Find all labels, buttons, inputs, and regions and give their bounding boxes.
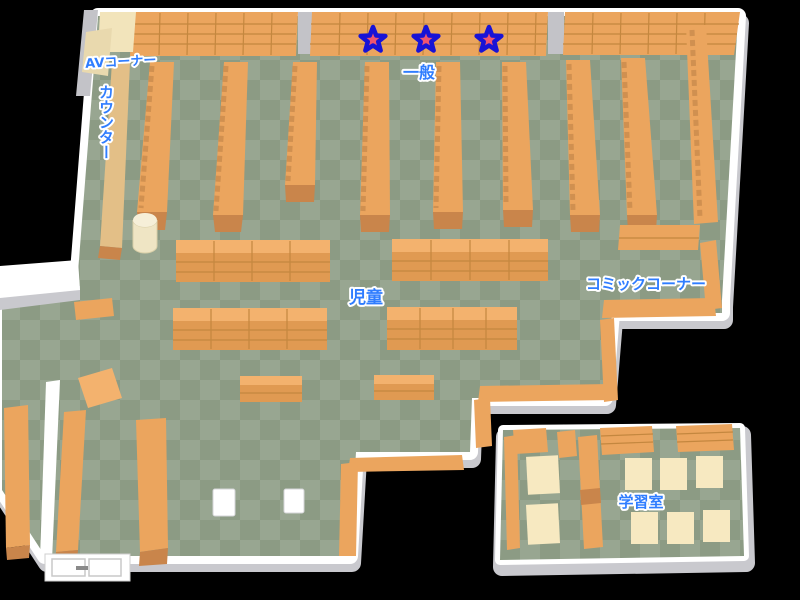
bookshelf	[392, 239, 548, 281]
desk	[696, 456, 723, 488]
wall-gap	[298, 12, 312, 54]
desk	[526, 503, 560, 545]
area-label-comic-corner: コミックコーナー	[586, 275, 706, 293]
desk	[625, 458, 652, 490]
bookshelf	[433, 62, 463, 229]
pillar	[133, 213, 157, 253]
desk	[631, 512, 658, 544]
desk	[660, 458, 687, 490]
floor-map-canvas: AVコーナー カウンター 一般 児童 コミックコーナー 学習室	[0, 0, 800, 600]
area-label-general: 一般	[403, 63, 435, 82]
area-label-children: 児童	[348, 287, 383, 308]
entrance-door	[45, 554, 130, 581]
white-stool	[284, 489, 304, 513]
area-label-study-room: 学習室	[618, 493, 663, 511]
bookshelf	[600, 426, 654, 455]
bookshelf	[173, 308, 327, 350]
library-floor-map: AVコーナー カウンター 一般 児童 コミックコーナー 学習室	[0, 0, 800, 600]
desk	[526, 455, 560, 495]
bookshelf	[374, 375, 434, 400]
desk	[703, 510, 730, 542]
bookshelf	[360, 62, 390, 232]
bookshelf	[176, 240, 330, 282]
desk	[667, 512, 694, 544]
bookshelf	[676, 424, 734, 452]
wall-gap	[548, 12, 564, 54]
white-stool	[213, 489, 235, 516]
bookshelf	[387, 307, 517, 350]
bookshelf	[240, 376, 302, 402]
area-label-counter: カウンター	[97, 85, 115, 160]
